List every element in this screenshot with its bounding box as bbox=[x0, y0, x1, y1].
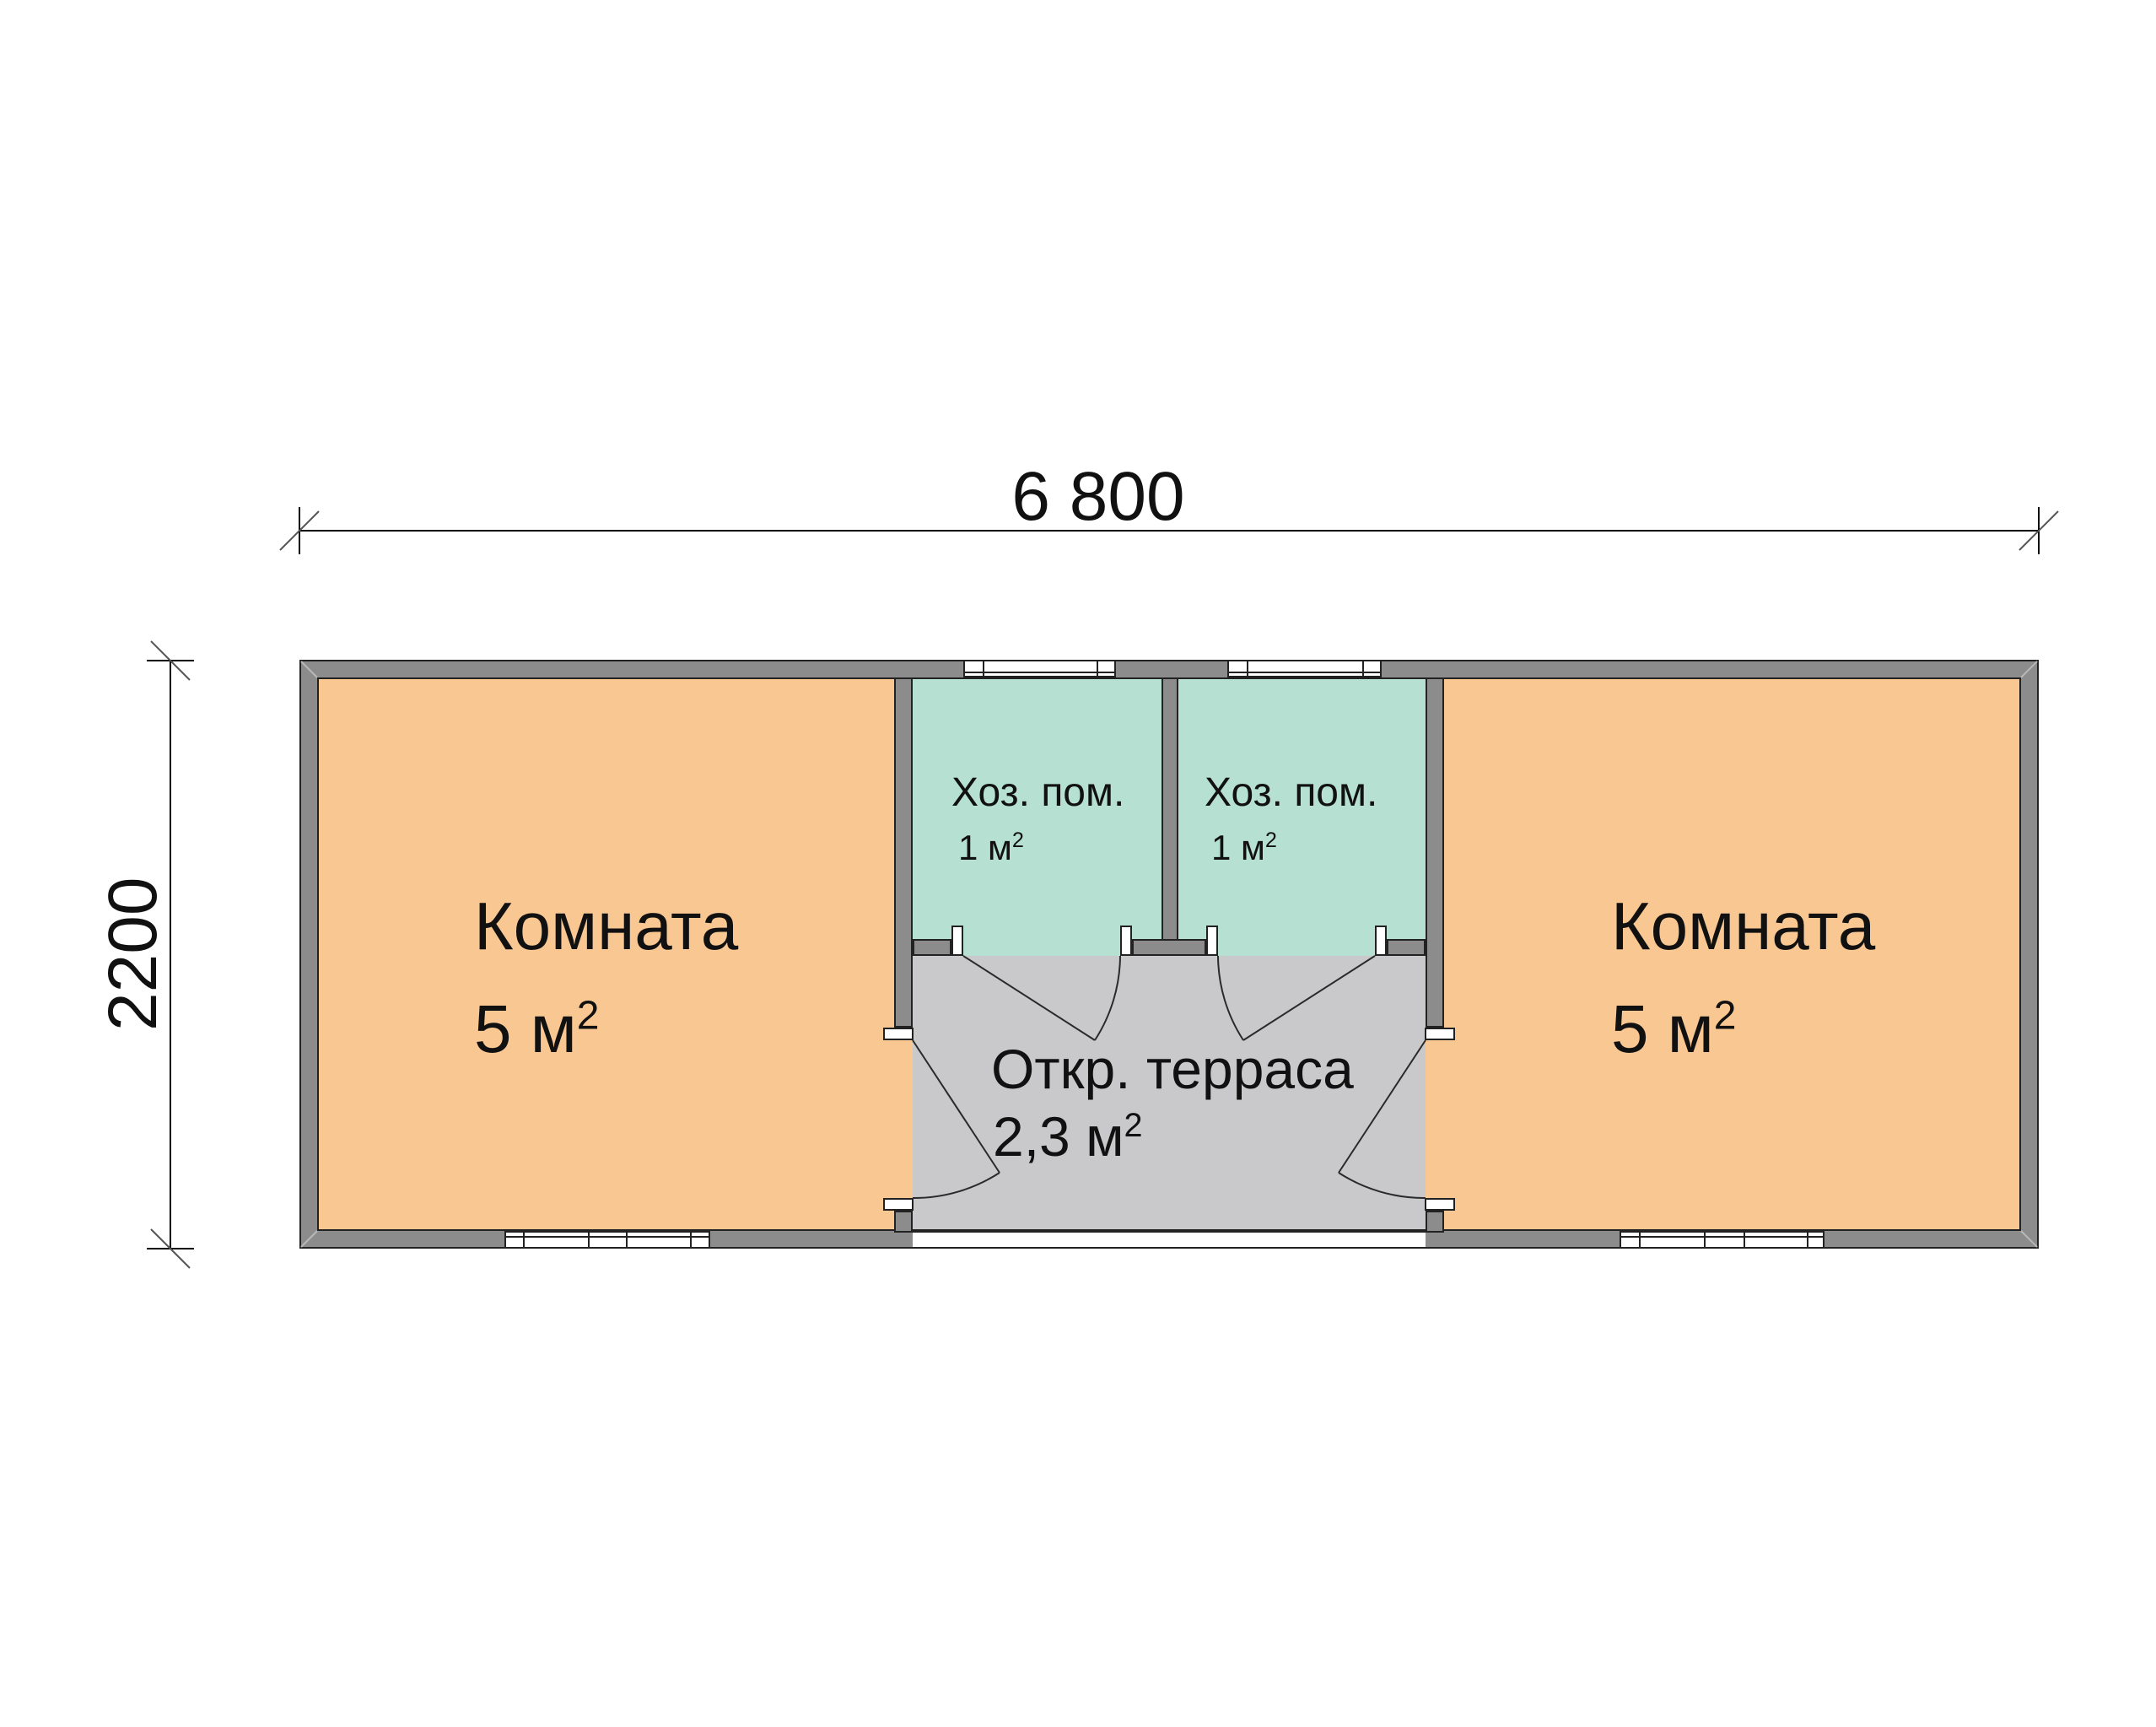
door-jamb bbox=[1375, 926, 1387, 956]
window-frame-line bbox=[1362, 661, 1364, 676]
superscript: 2 bbox=[577, 993, 600, 1038]
terrace-name: Откр. терраса bbox=[991, 1041, 1354, 1097]
room-right-area: 5 м2 bbox=[1611, 996, 1736, 1063]
window-room-right bbox=[1620, 1231, 1825, 1249]
window-frame-line bbox=[1229, 672, 1380, 673]
door-jamb bbox=[1206, 926, 1218, 956]
window-frame-line bbox=[1704, 1233, 1706, 1247]
door-jamb bbox=[1425, 1028, 1455, 1040]
door-jamb bbox=[1425, 1198, 1455, 1211]
window-frame-line bbox=[523, 1233, 525, 1247]
floor-plan: Комната 5 м2 Комната 5 м2 Хоз. пом. 1 м2… bbox=[0, 0, 2156, 1727]
terrace-open-edge bbox=[913, 1231, 1426, 1249]
door-jamb bbox=[883, 1028, 914, 1040]
wall-left-vertical-lower bbox=[894, 1211, 913, 1233]
wall-utility-bottom-left bbox=[913, 939, 951, 956]
superscript: 2 bbox=[1265, 828, 1277, 852]
superscript: 2 bbox=[1012, 828, 1024, 852]
wall-right-vertical-lower bbox=[1426, 1211, 1444, 1233]
window-utility-right bbox=[1227, 660, 1382, 677]
window-frame-line bbox=[983, 661, 984, 676]
utility-left-area: 1 м2 bbox=[958, 830, 1024, 866]
window-frame-line bbox=[1639, 1233, 1641, 1247]
window-frame-line bbox=[965, 672, 1114, 673]
window-frame-line bbox=[1097, 661, 1098, 676]
dimension-width-label: 6 800 bbox=[930, 462, 1267, 532]
window-frame-line bbox=[1621, 1236, 1823, 1238]
room-left-area: 5 м2 bbox=[474, 996, 599, 1063]
wall-utility-bottom-right bbox=[1387, 939, 1426, 956]
window-frame-line bbox=[506, 1236, 709, 1238]
superscript: 2 bbox=[1124, 1107, 1142, 1144]
window-utility-left bbox=[963, 660, 1116, 677]
window-frame-line bbox=[1247, 661, 1248, 676]
utility-right-name: Хоз. пом. bbox=[1205, 773, 1377, 813]
room-right-name: Комната bbox=[1611, 893, 1875, 960]
window-frame-line bbox=[690, 1233, 692, 1247]
window-room-left bbox=[504, 1231, 710, 1249]
wall-right-vertical-upper bbox=[1426, 677, 1444, 1028]
window-frame-line bbox=[588, 1233, 590, 1247]
utility-left-name: Хоз. пом. bbox=[951, 773, 1124, 813]
window-frame-line bbox=[1744, 1233, 1745, 1247]
dimension-height-label: 2200 bbox=[95, 785, 171, 1123]
wall-utility-bottom-middle bbox=[1132, 939, 1206, 956]
wall-utility-divider bbox=[1162, 677, 1178, 956]
utility-right-area: 1 м2 bbox=[1211, 830, 1277, 866]
superscript: 2 bbox=[1714, 993, 1737, 1038]
room-left-name: Комната bbox=[474, 893, 738, 960]
wall-left-vertical-upper bbox=[894, 677, 913, 1028]
window-frame-line bbox=[626, 1233, 628, 1247]
window-frame-line bbox=[1807, 1233, 1808, 1247]
door-jamb bbox=[883, 1198, 914, 1211]
door-jamb bbox=[951, 926, 963, 956]
terrace-area: 2,3 м2 bbox=[993, 1109, 1142, 1164]
door-jamb bbox=[1120, 926, 1132, 956]
